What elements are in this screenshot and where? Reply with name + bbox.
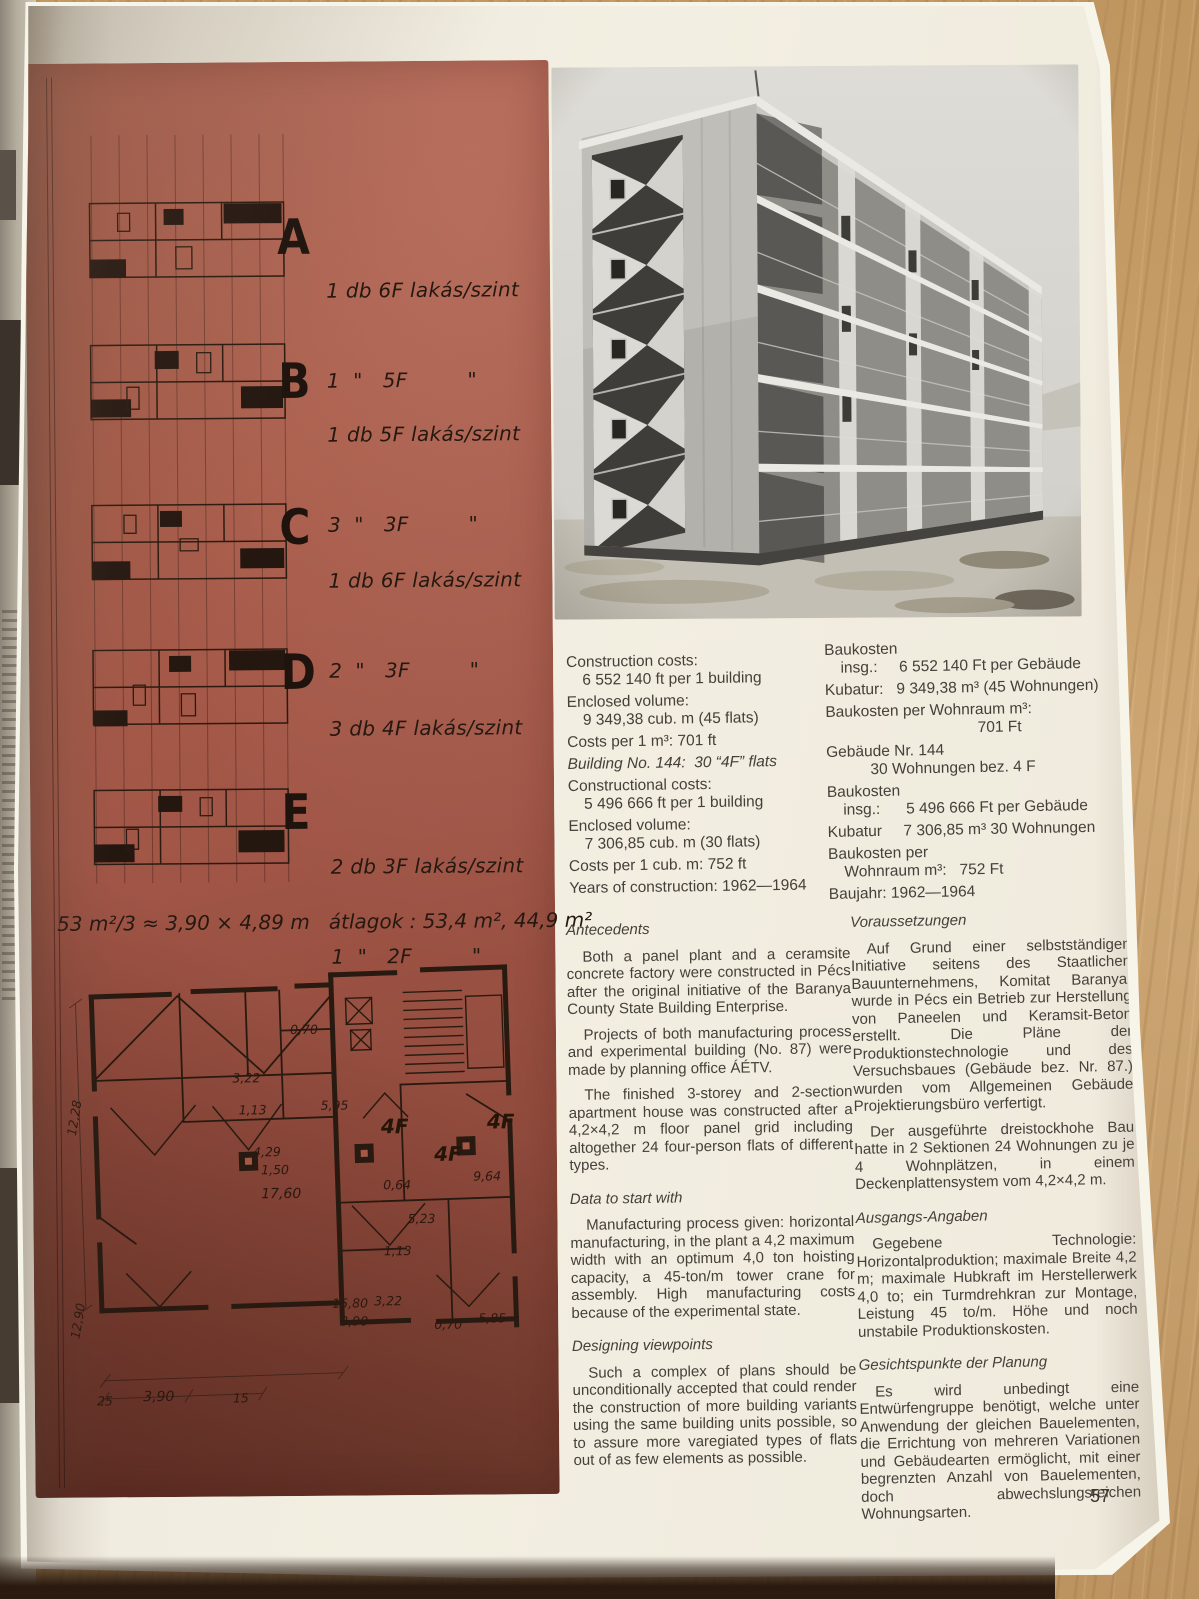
paragraph: Projects of both manufacturing process a… [567, 1023, 852, 1079]
stat-line: 6 552 140 ft per 1 building [566, 668, 830, 690]
handwritten-formula: 53 m²/3 ≈ 3,90 × 4,89 m átlagok : 53,4 m… [57, 908, 553, 936]
dim-label: 0,64 [383, 1177, 411, 1192]
section-heading-antecedents: Antecedents [566, 918, 850, 939]
dim-label: 12,90 [67, 1302, 88, 1340]
dim-label: 17,60 [261, 1186, 301, 1202]
annotation-line: 2 db 3F lakás/szint [331, 850, 549, 882]
unit-label: 4F [486, 1109, 515, 1133]
stat-line: Baujahr: 1962—1964 [829, 880, 1131, 904]
type-letter-a: A [277, 208, 310, 265]
section-heading-voraussetzungen: Voraussetzungen [850, 909, 1130, 932]
paragraph: Der ausgeführte dreistockhohe Bau hatte … [854, 1118, 1135, 1193]
previous-page-image-fragment [0, 1168, 20, 1403]
type-letter-b: B [278, 352, 311, 409]
construction-stats-german: Baukosten insg.: 6 552 140 Ft per Gebäud… [824, 636, 1131, 904]
dim-label: 5,23 [407, 1211, 435, 1226]
flat-type-labels: 4F 4F 4F [380, 1109, 515, 1166]
unit-label: 4F [380, 1114, 409, 1138]
dim-label: 3,90 [143, 1389, 174, 1405]
stat-line: Costs per 1 m³: 701 ft [567, 730, 831, 752]
dim-label: 0,70 [290, 1022, 318, 1037]
dim-label: 1,13 [384, 1243, 412, 1258]
dim-label: 15 [233, 1390, 249, 1405]
annotation-line: 1 db 6F lakás/szint [328, 564, 546, 596]
stat-line: Years of construction: 1962—1964 [569, 876, 833, 898]
magazine-page: 0,70 3,22 1,13 5,95 4,29 1,50 17,60 0,64… [18, 6, 1164, 1574]
panel-crease-lines [46, 78, 64, 1488]
elevation-thumbnails [89, 202, 288, 865]
paragraph: Auf Grund einer selbstständigen Initiati… [851, 935, 1134, 1115]
unit-label: 4F [433, 1142, 462, 1166]
section-heading-ausgangs-angaben: Ausgangs-Angaben [856, 1204, 1136, 1227]
dim-label: 4,29 [253, 1144, 281, 1159]
building-photo [551, 64, 1081, 619]
column-english: Antecedents Both a panel plant and a cer… [566, 918, 858, 1477]
paragraph: The finished 3-storey and 2-section apar… [568, 1083, 853, 1174]
dim-label: 5,85 [478, 1310, 506, 1325]
apartment-building-illustration [551, 64, 1081, 619]
type-annotation-d: 3 db 4F lakás/szint [329, 652, 548, 804]
type-letter-c: C [279, 498, 311, 555]
stat-line: 7 306,85 cub. m (30 flats) [569, 832, 833, 854]
book-page-photo: { "page": { "number": "57" }, "red_panel… [0, 0, 1199, 1599]
stat-line: Building No. 144: 30 “4F” flats [567, 752, 831, 774]
section-heading-gesichtspunkte: Gesichtspunkte der Planung [859, 1352, 1139, 1375]
stat-line: Costs per 1 cub. m: 752 ft [569, 854, 833, 876]
annotation-line: 3 db 4F lakás/szint [329, 712, 547, 744]
paragraph: Gegebene Technologie: Horizontalprodukti… [856, 1231, 1138, 1341]
dim-label: 15,80 [332, 1295, 368, 1310]
stat-line: 9 349,38 cub. m (45 flats) [567, 708, 831, 730]
stat-line: Kubatur: 9 349,38 m³ (45 Wohnungen) [825, 676, 1127, 700]
dim-label: 1,13 [239, 1102, 267, 1117]
dimension-lines [69, 991, 349, 1406]
stat-line: 5 496 666 ft per 1 building [568, 792, 832, 814]
door-symbols [111, 1089, 500, 1318]
annotation-line: 1 db 6F lakás/szint [326, 274, 544, 306]
paragraph: Such a complex of plans should be uncond… [572, 1360, 857, 1469]
column-german: Voraussetzungen Auf Grund einer selbstst… [850, 909, 1142, 1532]
dim-label: 3,22 [374, 1293, 402, 1308]
dim-label: 3,90 [340, 1313, 368, 1328]
dim-label: 9,64 [473, 1168, 501, 1183]
annotation-line: 1 " 2F " [331, 940, 549, 972]
dim-label: 12,28 [64, 1099, 85, 1137]
dim-label: 1,50 [261, 1162, 289, 1177]
page-number: 57 [1090, 1486, 1110, 1507]
construction-stats-english: Construction costs: 6 552 140 ft per 1 b… [566, 650, 833, 898]
paragraph: Manufacturing process given: horizontal … [570, 1213, 855, 1322]
stat-line: Kubatur 7 306,85 m³ 30 Wohnungen [827, 818, 1129, 842]
section-heading-data: Data to start with [570, 1187, 854, 1208]
paragraph: Both a panel plant and a ceramsite concr… [566, 945, 851, 1019]
dim-label: 0,70 [434, 1317, 462, 1332]
type-letter-e: E [281, 783, 310, 840]
previous-page-fragment [0, 150, 16, 220]
plan-dimensions: 0,70 3,22 1,13 5,95 4,29 1,50 17,60 0,64… [63, 1020, 507, 1408]
red-drawing-panel: 0,70 3,22 1,13 5,95 4,29 1,50 17,60 0,64… [24, 60, 559, 1498]
dim-label: 25 [97, 1393, 113, 1408]
dim-label: 5,95 [321, 1098, 349, 1113]
section-heading-designing: Designing viewpoints [572, 1334, 856, 1355]
type-letter-d: D [280, 643, 316, 701]
annotation-line: 1 db 5F lakás/szint [327, 418, 545, 450]
book-bottom-shadow [0, 1556, 1055, 1599]
dim-label: 3,22 [232, 1070, 260, 1085]
